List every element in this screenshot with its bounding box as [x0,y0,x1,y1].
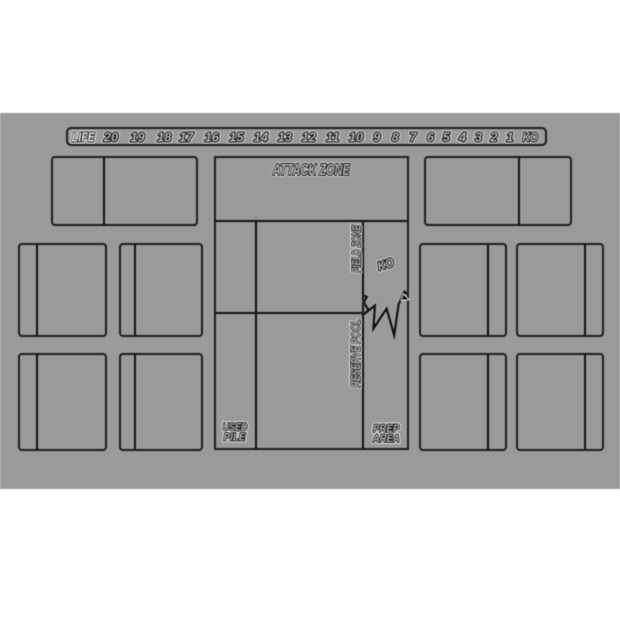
svg-text:PILE: PILE [224,431,247,443]
svg-text:FIELD ZONE: FIELD ZONE [350,224,364,272]
svg-text:4: 4 [458,130,467,145]
svg-text:1: 1 [506,130,513,145]
svg-text:20: 20 [103,130,119,145]
svg-text:16: 16 [205,130,220,145]
svg-text:7: 7 [409,130,417,145]
svg-text:11: 11 [326,130,340,145]
svg-text:2: 2 [489,130,498,145]
svg-text:RESERVE POOL: RESERVE POOL [348,319,363,387]
svg-text:12: 12 [302,130,317,145]
svg-text:AREA: AREA [372,433,400,445]
svg-text:17: 17 [179,130,194,145]
svg-text:KO: KO [522,130,538,145]
svg-text:14: 14 [254,130,269,145]
svg-text:5: 5 [443,130,451,145]
svg-text:10: 10 [349,130,364,145]
svg-text:KO: KO [376,255,396,273]
svg-text:19: 19 [130,130,145,145]
svg-text:8: 8 [392,130,400,145]
svg-text:13: 13 [278,130,293,145]
svg-text:LIFE: LIFE [72,130,95,145]
svg-text:6: 6 [427,130,435,145]
svg-text:ATTACK ZONE: ATTACK ZONE [272,162,351,179]
svg-text:3: 3 [475,130,483,145]
svg-text:9: 9 [373,130,381,145]
svg-text:18: 18 [157,130,172,145]
svg-text:15: 15 [229,130,244,145]
